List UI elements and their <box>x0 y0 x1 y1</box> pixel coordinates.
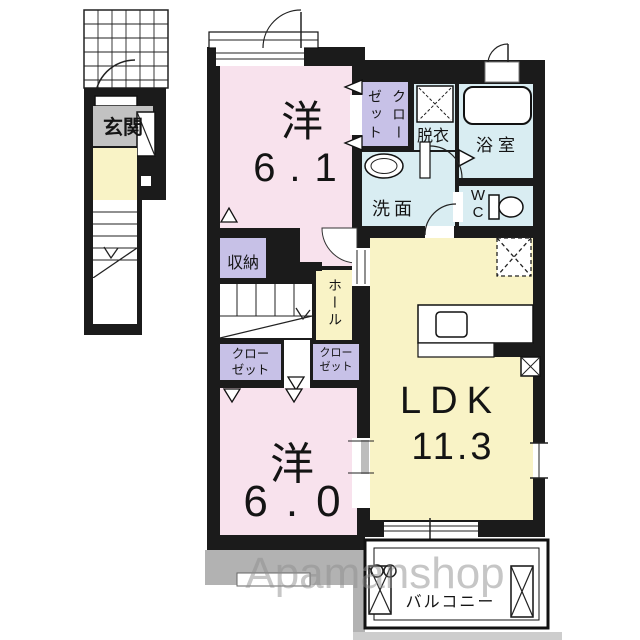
entrance-door-leaf <box>95 96 137 106</box>
ldk-floor <box>370 238 533 520</box>
kitchen-counter-lip <box>418 343 494 357</box>
entrance-block <box>84 10 168 335</box>
window <box>216 47 304 66</box>
pipe-space-hatch <box>521 357 540 376</box>
closet-top-label: クローゼット <box>361 85 411 147</box>
ground-edge <box>353 632 562 640</box>
window <box>384 522 478 537</box>
hall-ldk-opening <box>352 248 370 286</box>
western-room-2-size: 6.0 <box>237 477 365 527</box>
stair-void <box>93 278 137 324</box>
dressing-room-label: 脱衣 <box>407 122 459 146</box>
entrance-hall-floor <box>93 148 137 200</box>
closet-bottom-left-label: クロー ゼット <box>220 346 281 378</box>
door-leaf <box>420 142 430 178</box>
bathroom-label: 浴室 <box>468 131 528 156</box>
watermark: Apamanshop <box>235 549 515 599</box>
washroom-label: 洗面 <box>362 195 426 221</box>
entrance-label: 玄関 <box>94 111 152 140</box>
bath-window <box>485 62 519 82</box>
floor-plan: 玄関 洋 6.1 クローゼット 脱衣 浴室 洗面 W C 収納 ホール クロー … <box>0 0 640 640</box>
ldk-size: 11.3 <box>388 426 518 469</box>
doorway-gap <box>425 226 454 238</box>
bath-window-arc <box>488 44 508 62</box>
kitchen-sink-icon <box>436 312 467 337</box>
storage-label: 収納 <box>220 249 266 273</box>
wall-notch <box>141 176 151 186</box>
ldk-label: LDK <box>388 380 513 423</box>
bathtub-icon <box>464 87 531 124</box>
toilet-tank <box>489 195 499 219</box>
wc-door-gap <box>453 192 463 222</box>
toilet-label: W C <box>466 187 490 221</box>
sliding-door-panel <box>361 440 369 474</box>
refrigerator-space <box>497 238 531 276</box>
western-room-1-label: 洋 <box>272 88 332 149</box>
hall-label: ホール <box>327 271 345 335</box>
western-room-1-size: 6.1 <box>243 146 361 191</box>
toilet-icon <box>499 197 523 217</box>
closet-bottom-right-label: クロー ゼット <box>313 346 359 374</box>
